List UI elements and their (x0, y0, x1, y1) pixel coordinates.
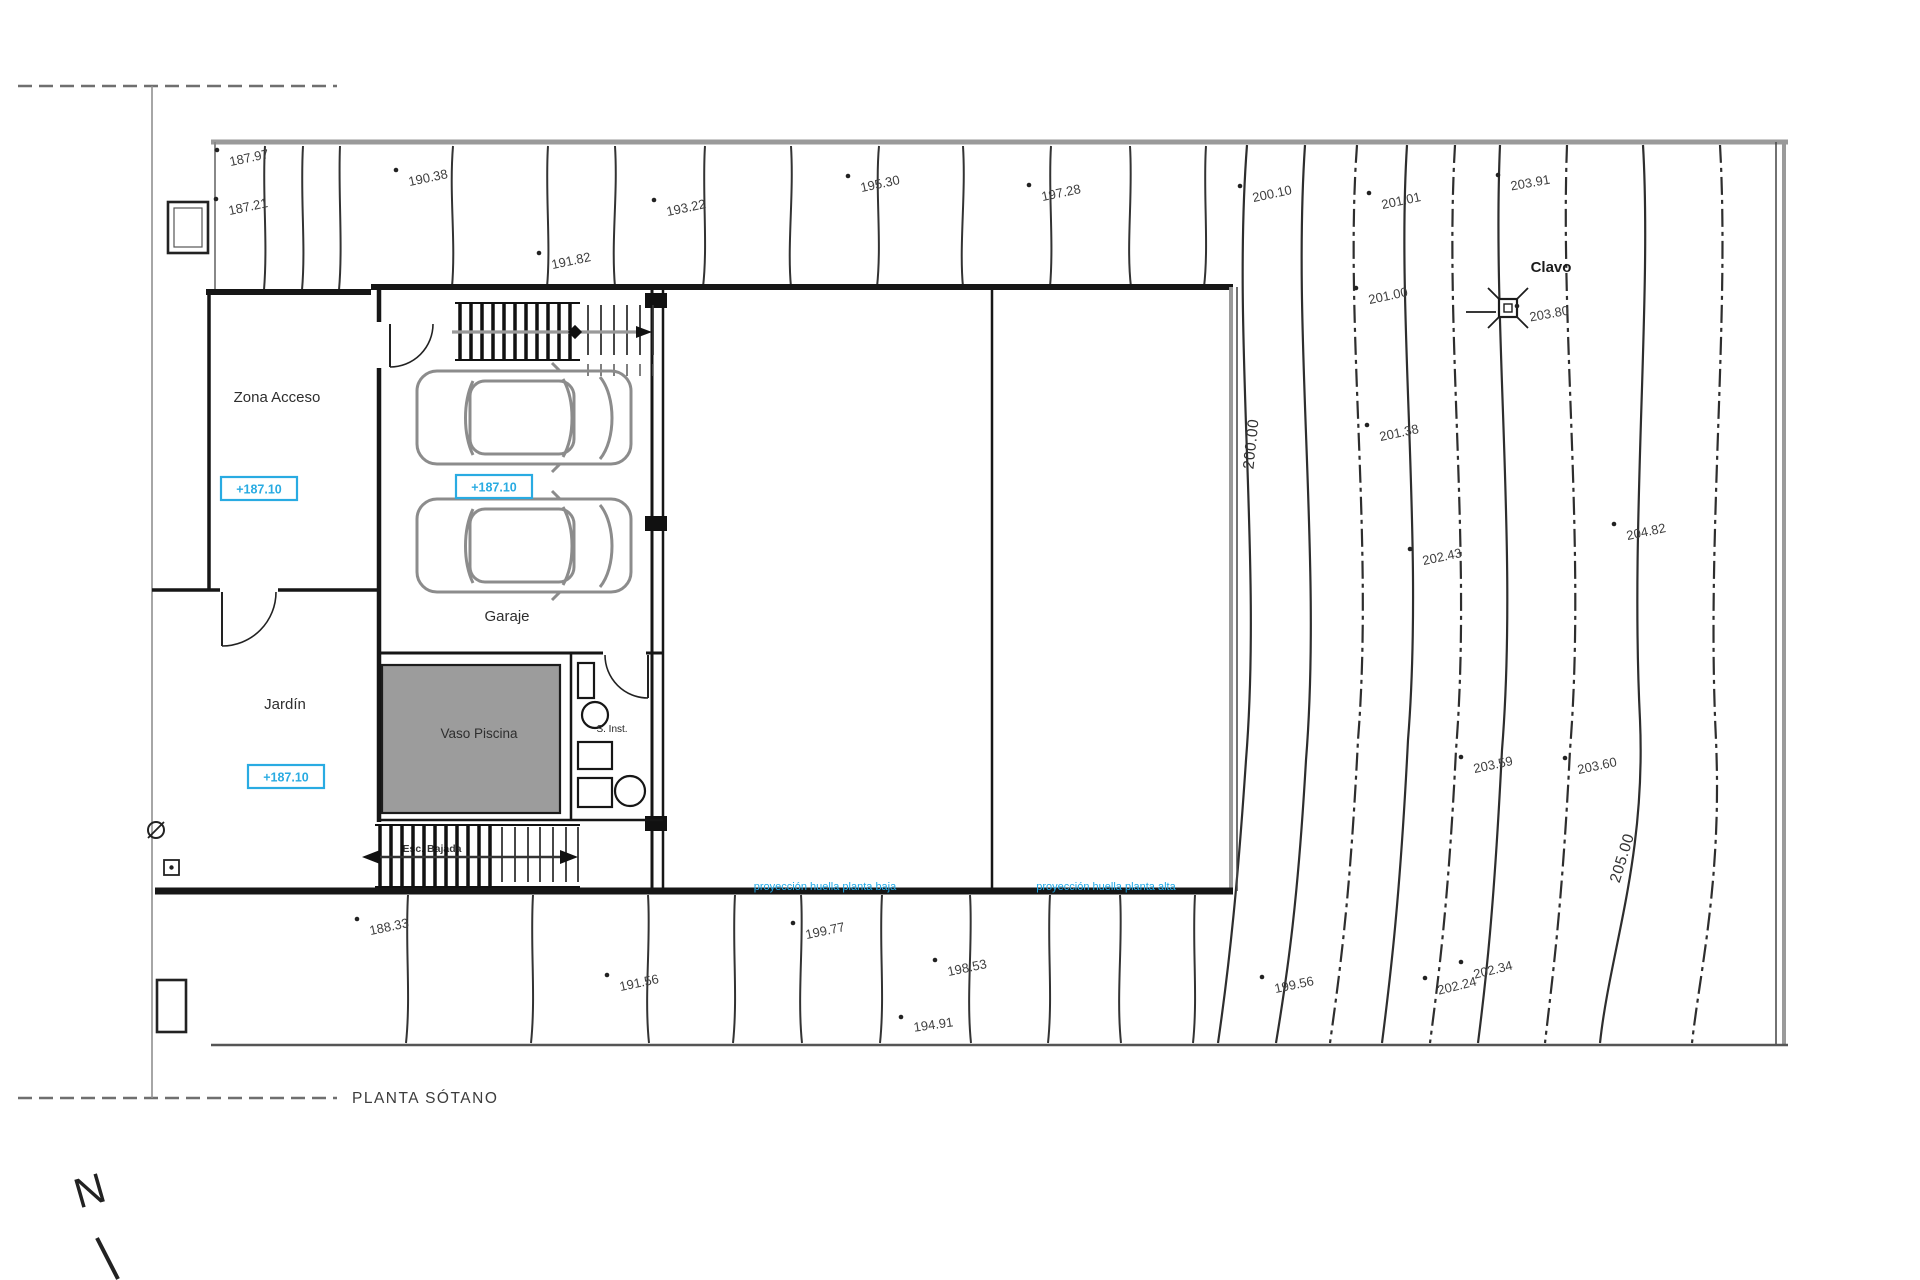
stair-arrow-right (560, 850, 578, 864)
benchmark-square (1499, 299, 1517, 317)
doors (222, 324, 648, 698)
spot-elevation-label: 194.91 (913, 1014, 954, 1034)
annex-box-bottom (157, 980, 186, 1032)
garage-stair-upper-flight (588, 305, 653, 376)
spot-elevation-label: 202.24 (1436, 974, 1478, 998)
spot-elevation-dot (1496, 173, 1501, 178)
spot-elevation-dot (394, 168, 399, 173)
spot-elevation-label: 203.59 (1472, 753, 1514, 776)
north-arrow-line (97, 1238, 118, 1279)
equipment-box-2 (578, 778, 612, 807)
spot-elevation-dot (1459, 755, 1464, 760)
spot-elevation-dot (1423, 976, 1428, 981)
spot-elevation-dot (537, 251, 542, 256)
equipment-box-1 (578, 742, 612, 769)
stair-arrow-left (362, 850, 380, 864)
pool: Vaso Piscina (382, 665, 560, 813)
north-letter: N (69, 1164, 111, 1218)
spot-elevation-dot (899, 1015, 904, 1020)
spot-elevation-label: 198.53 (946, 956, 988, 979)
spot-elevation-label: 200.10 (1251, 182, 1293, 205)
spot-elevation-label: 201.38 (1378, 421, 1420, 444)
contour-lines-bottom-strip (406, 895, 1195, 1043)
stair-direction-arrow (636, 326, 652, 338)
projection-text-planta-baja: proyección huella planta baja (754, 881, 897, 893)
spot-elevation-label: 203.91 (1509, 172, 1551, 194)
north-arrow: N (69, 1164, 118, 1279)
spot-elevation-dot (215, 148, 220, 153)
contour-label-200: 200.00 (1240, 418, 1262, 470)
column (645, 816, 667, 831)
floor-plan-canvas: Esc. Bajada Vaso Piscina S. Inst. (0, 0, 1920, 1280)
room-label-jardin: Jardín (264, 696, 306, 713)
projection-text-planta-alta: proyección huella planta alta (1036, 881, 1176, 893)
room-label-zona-acceso: Zona Acceso (234, 389, 321, 406)
spot-elevation-label: 204.82 (1625, 520, 1667, 543)
spot-elevation-label: 203.80 (1528, 303, 1570, 325)
utility-room: S. Inst. (578, 663, 645, 807)
site-structures (148, 202, 208, 1032)
exterior-stair-label: Esc. Bajada (403, 843, 462, 855)
spot-elevation-dot (933, 958, 938, 963)
level-value: +187.10 (236, 483, 282, 497)
floor-plan-page: Esc. Bajada Vaso Piscina S. Inst. (0, 0, 1920, 1280)
spot-elevation-dot (214, 197, 219, 202)
car-1 (417, 363, 631, 472)
spot-elevation-dot (605, 973, 610, 978)
spot-elevation-label: 188.33 (368, 915, 410, 938)
room-label-garaje: Garaje (484, 608, 529, 625)
door-arc-utility (605, 655, 648, 698)
spot-elevation-label: 191.82 (550, 249, 592, 272)
spot-elevation-dot (1027, 183, 1032, 188)
level-value: +187.10 (471, 481, 517, 495)
spot-elevation-dot (1260, 975, 1265, 980)
drawing-title: PLANTA SÓTANO (352, 1090, 498, 1107)
spot-elevation-label: 190.38 (407, 166, 449, 189)
spot-elevation-dot (1354, 286, 1359, 291)
spot-elevation-label: 202.34 (1472, 958, 1514, 982)
spot-elevation-dot (791, 921, 796, 926)
utility-square-dot (169, 865, 173, 869)
level-value: +187.10 (263, 771, 309, 785)
spot-elevation-dot (652, 198, 657, 203)
spot-elevation-label: 191.56 (618, 971, 660, 994)
car-2 (417, 491, 631, 600)
spot-elevation-dot (846, 174, 851, 179)
spot-elevation-label: 187.21 (227, 195, 269, 218)
spot-elevation-label: 203.60 (1576, 754, 1618, 777)
contour-lines-top-strip (264, 146, 1206, 290)
utility-room-label: S. Inst. (596, 724, 627, 735)
shower-fixture (578, 663, 594, 698)
spot-elevation-label: 195.30 (859, 172, 901, 195)
spot-elevation-label: 199.56 (1273, 973, 1315, 996)
spot-elevation-label: 193.22 (665, 196, 707, 219)
spot-elevation-label: 201.01 (1380, 189, 1422, 212)
spot-elevation-dot (355, 917, 360, 922)
exterior-stair: Esc. Bajada (362, 825, 580, 887)
contour-lines-right-zone (1218, 145, 1722, 1043)
column (645, 293, 667, 308)
spot-elevation-label: 197.28 (1040, 181, 1082, 204)
spot-elevation-label: 199.77 (804, 919, 846, 942)
spot-elevation-dot (1515, 304, 1520, 309)
spot-elevation-dot (1238, 184, 1243, 189)
equipment-tank (615, 776, 645, 806)
door-arc-garage (390, 324, 433, 367)
building-walls (152, 287, 1237, 891)
column (645, 516, 667, 531)
spot-elevation-label: 201.00 (1367, 284, 1409, 307)
door-arc-jardin (222, 592, 276, 646)
spot-elevation-dot (1612, 522, 1617, 527)
spot-elevation-dot (1563, 756, 1568, 761)
spot-elevation-dot (1367, 191, 1372, 196)
benchmark-label: Clavo (1531, 259, 1572, 276)
spot-elevation-label: 202.43 (1421, 545, 1463, 568)
spot-elevation-dot (1459, 960, 1464, 965)
pool-label: Vaso Piscina (440, 726, 518, 741)
spot-elevation-dot (1408, 547, 1413, 552)
spot-elevation-dot (1365, 423, 1370, 428)
